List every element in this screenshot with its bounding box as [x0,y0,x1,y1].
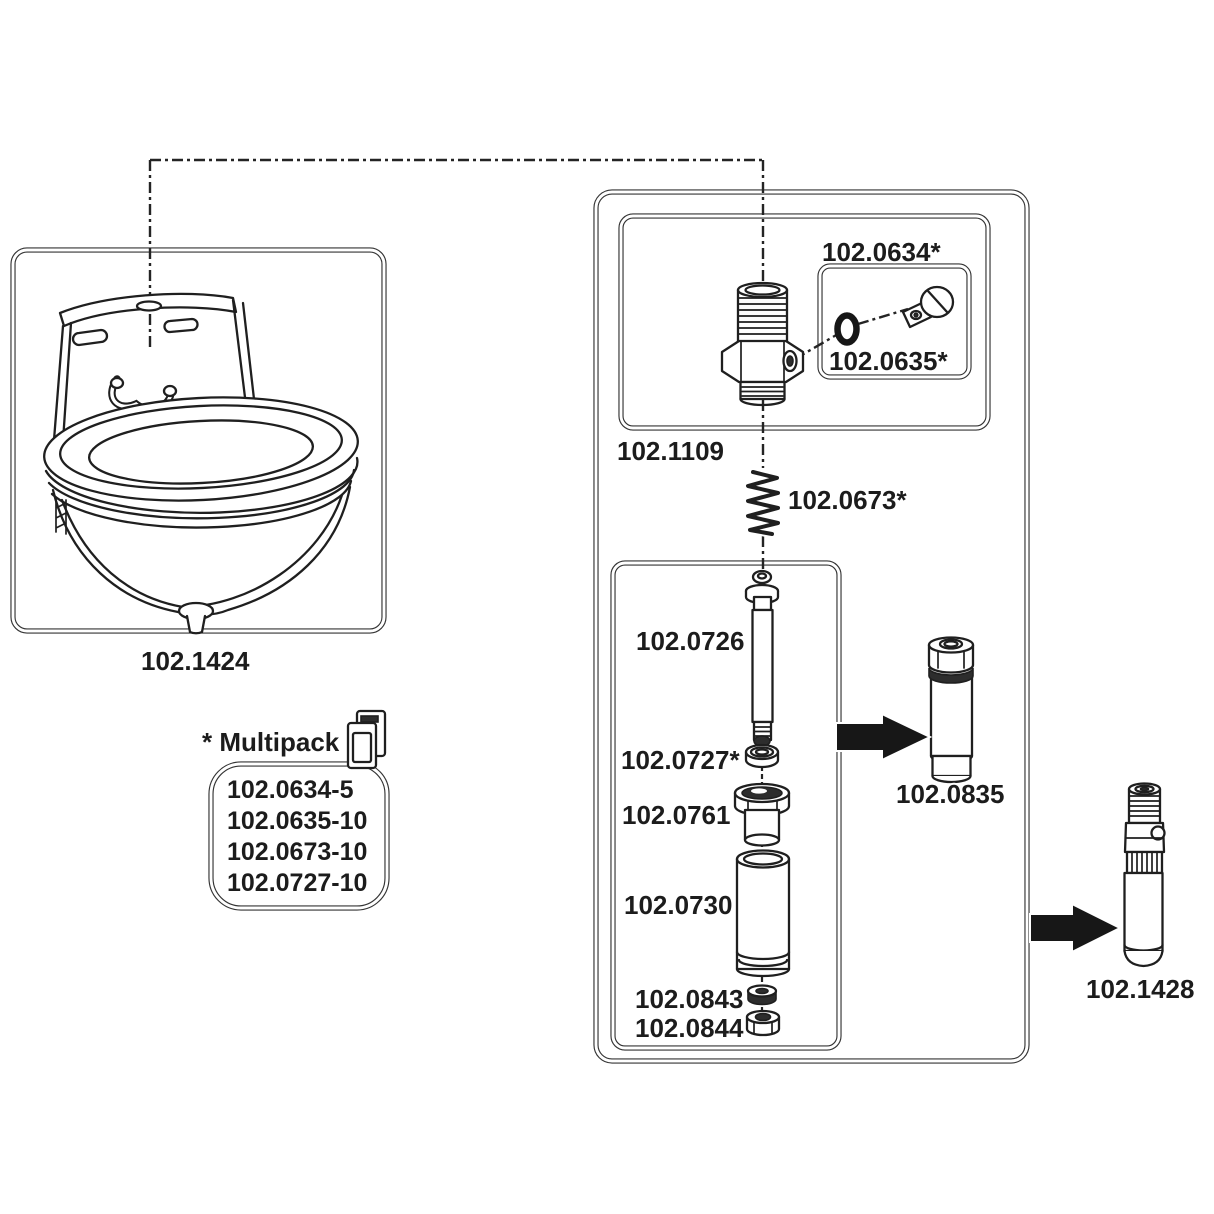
nut-part-label: 102.0844 [635,1013,743,1043]
guide-part-label: 102.0761 [622,800,730,830]
screw-drawing [903,287,953,327]
multipack-item: 102.0635-10 [227,806,367,837]
spring-drawing [748,472,778,534]
complete-valve-drawing [1125,784,1165,967]
cartridge-drawing [929,638,973,783]
complete-valve-part-label: 102.1428 [1086,974,1194,1004]
seal-washer-drawing [746,745,778,767]
valve-tube-drawing [737,851,789,977]
lower-washer-drawing [748,986,776,1005]
multipack-title: * Multipack [202,727,339,757]
diagram-canvas [0,0,1214,1214]
nut-drawing [747,1011,779,1035]
washer-part-label: 102.0843 [635,984,743,1014]
multipack-item: 102.0634-5 [227,775,367,806]
inlet-fitting-drawing [722,283,803,405]
valve-pin-drawing [746,571,778,746]
arrow-right-icon [836,714,930,760]
parts-diagram: 102.1424 * Multipack 102.0634-5 102.0635… [0,0,1214,1214]
carton-icon [348,711,385,768]
arrow-right-icon [1030,904,1120,952]
seal-part-label: 102.0727* [621,745,740,775]
pin-part-label: 102.0726 [636,626,744,656]
multipack-list: 102.0634-5 102.0635-10 102.0673-10 102.0… [227,775,367,899]
cartridge-part-label: 102.0835 [896,779,1004,809]
oring-screw-part-label: 102.0635* [829,346,948,376]
multipack-item: 102.0673-10 [227,837,367,868]
bowl-part-label: 102.1424 [141,646,249,676]
tube-part-label: 102.0730 [624,890,732,920]
guide-bushing-drawing [735,784,789,846]
fitting-group-part-label: 102.1109 [617,436,724,466]
multipack-item: 102.0727-10 [227,868,367,899]
spring-part-label: 102.0673* [788,485,907,515]
service-kit-part-label: 102.0634* [822,237,941,267]
o-ring-drawing [838,316,857,343]
drinking-bowl-drawing [42,294,361,633]
